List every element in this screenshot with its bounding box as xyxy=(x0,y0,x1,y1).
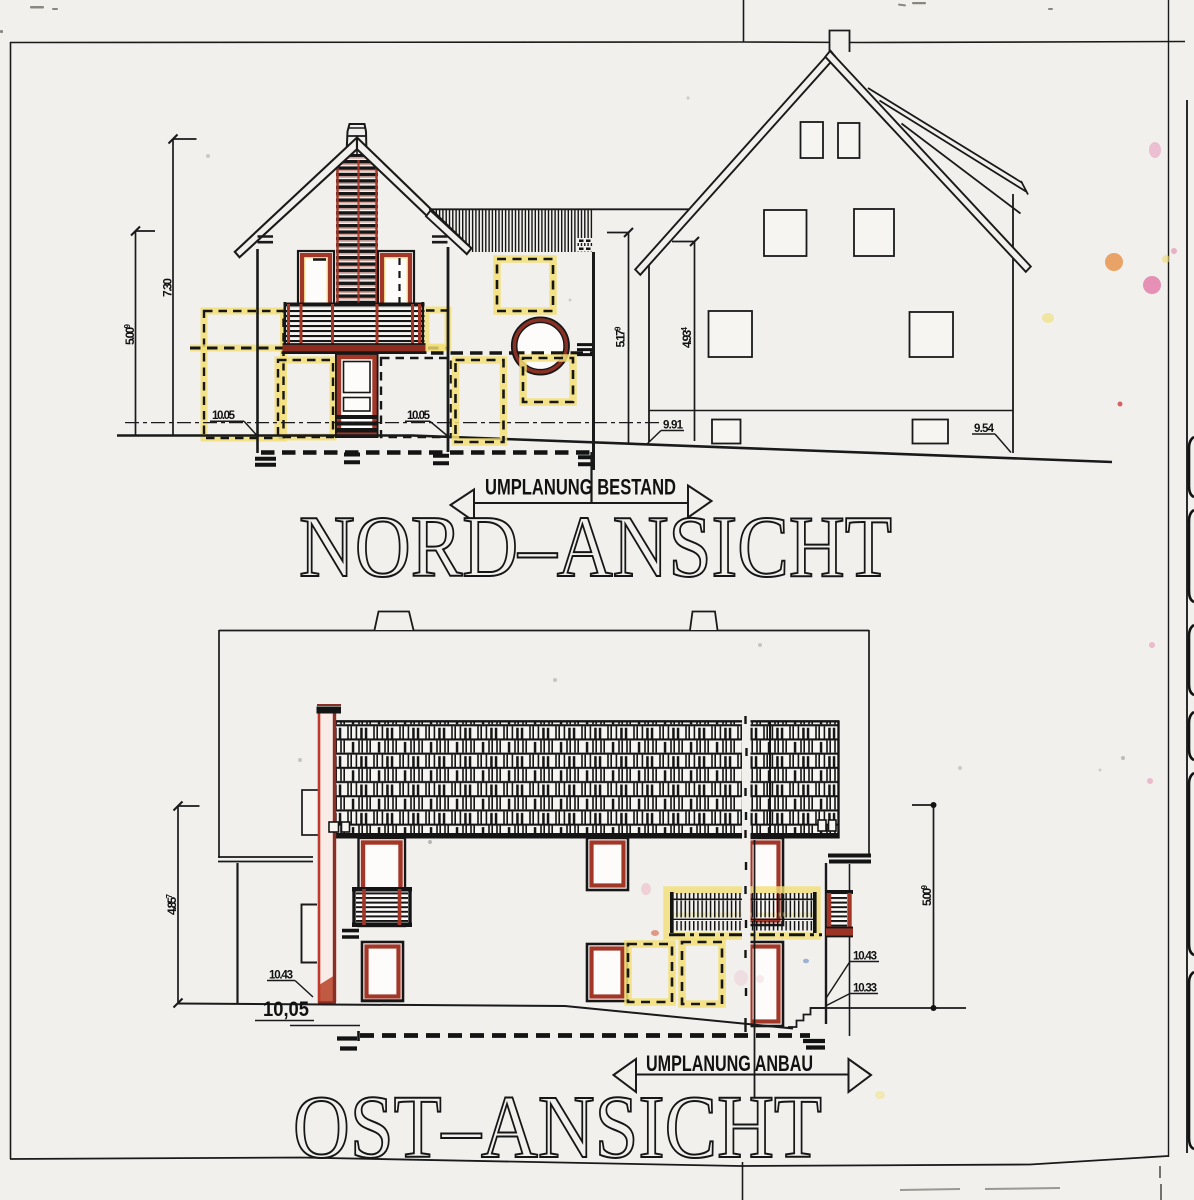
svg-text:OST–ANSICHT: OST–ANSICHT xyxy=(293,1078,822,1177)
svg-text:UMPLANUNG ANBAU: UMPLANUNG ANBAU xyxy=(646,1051,813,1076)
svg-text:10.43: 10.43 xyxy=(269,970,293,982)
svg-text:7.30: 7.30 xyxy=(161,278,175,297)
svg-text:10.05: 10.05 xyxy=(407,410,431,422)
svg-text:10,05: 10,05 xyxy=(263,998,309,1021)
svg-text:10.33: 10.33 xyxy=(853,983,877,995)
svg-text:9.91: 9.91 xyxy=(663,420,684,432)
svg-text:10.43: 10.43 xyxy=(853,951,877,963)
svg-text:NORD–ANSICHT: NORD–ANSICHT xyxy=(299,499,892,596)
svg-text:UMPLANUNG BESTAND: UMPLANUNG BESTAND xyxy=(485,475,676,500)
svg-text:9.54: 9.54 xyxy=(974,423,995,435)
svg-text:10.05: 10.05 xyxy=(212,410,236,422)
